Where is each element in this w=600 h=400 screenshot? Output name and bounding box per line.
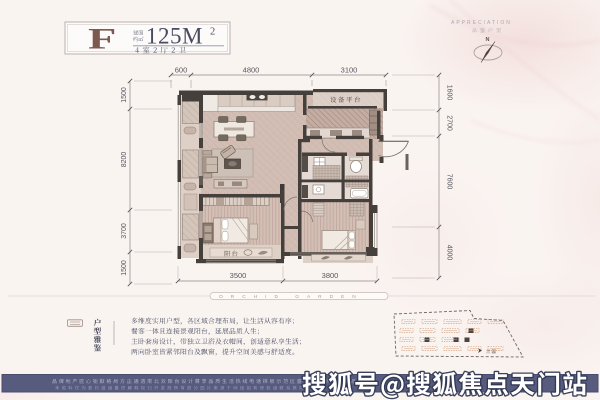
svg-text:3100: 3100 — [341, 66, 358, 75]
svg-text:7600: 7600 — [446, 174, 453, 190]
svg-text:125M: 125M — [146, 24, 203, 49]
svg-text:ORCHID GARDEN: ORCHID GARDEN — [219, 294, 364, 300]
svg-text:1600: 1600 — [446, 85, 453, 101]
svg-text:3700: 3700 — [121, 223, 128, 239]
svg-text:APPRECIATION: APPRECIATION — [451, 20, 512, 26]
svg-text:2700: 2700 — [446, 115, 453, 131]
svg-text:4800: 4800 — [243, 66, 260, 75]
svg-text:N: N — [486, 37, 490, 43]
svg-text:3500: 3500 — [230, 271, 247, 280]
svg-text:3800: 3800 — [322, 271, 339, 280]
svg-text:8200: 8200 — [121, 152, 128, 168]
svg-text:4000: 4000 — [446, 245, 453, 261]
svg-text:F: F — [88, 22, 116, 55]
svg-text:1500: 1500 — [121, 260, 128, 276]
svg-text:600: 600 — [175, 66, 188, 75]
svg-text:2: 2 — [210, 27, 215, 38]
svg-text:1500: 1500 — [121, 87, 128, 103]
